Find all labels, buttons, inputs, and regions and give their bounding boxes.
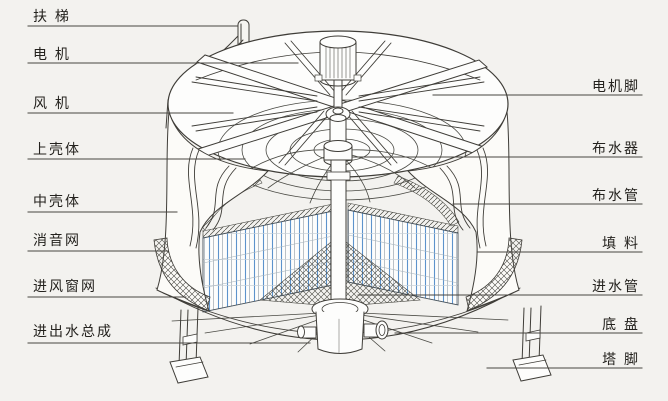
label-motor: 电 机 xyxy=(33,46,71,62)
water-inlet-outlet-assembly xyxy=(298,299,389,354)
label-silencer-net: 消音网 xyxy=(33,232,81,248)
label-basin: 底 盘 xyxy=(602,316,640,332)
label-motor-foot: 电机脚 xyxy=(592,78,640,94)
label-tower-foot: 塔 脚 xyxy=(602,351,640,367)
label-fan: 风 机 xyxy=(33,95,71,111)
motor-foot-bracket xyxy=(315,75,322,81)
label-ladder: 扶 梯 xyxy=(33,8,71,24)
label-distribution-pipe: 布水管 xyxy=(592,187,640,203)
label-middle-shell: 中壳体 xyxy=(33,193,81,209)
label-upper-shell: 上壳体 xyxy=(33,141,81,157)
tower-leg-right xyxy=(513,306,551,381)
cooling-tower-diagram xyxy=(0,0,668,401)
label-water-inlet-outlet-assembly: 进出水总成 xyxy=(33,323,113,339)
cooling-tower-figure: 扶 梯 电 机 风 机 上壳体 中壳体 消音网 进风窗网 进出水总成 电机脚 布… xyxy=(0,0,668,401)
label-inlet-pipe: 进水管 xyxy=(592,278,640,294)
motor-foot-bracket xyxy=(354,75,361,81)
label-fill: 填 料 xyxy=(602,235,640,251)
label-water-distributor: 布水器 xyxy=(592,140,640,156)
label-air-inlet-mesh: 进风窗网 xyxy=(33,278,97,294)
